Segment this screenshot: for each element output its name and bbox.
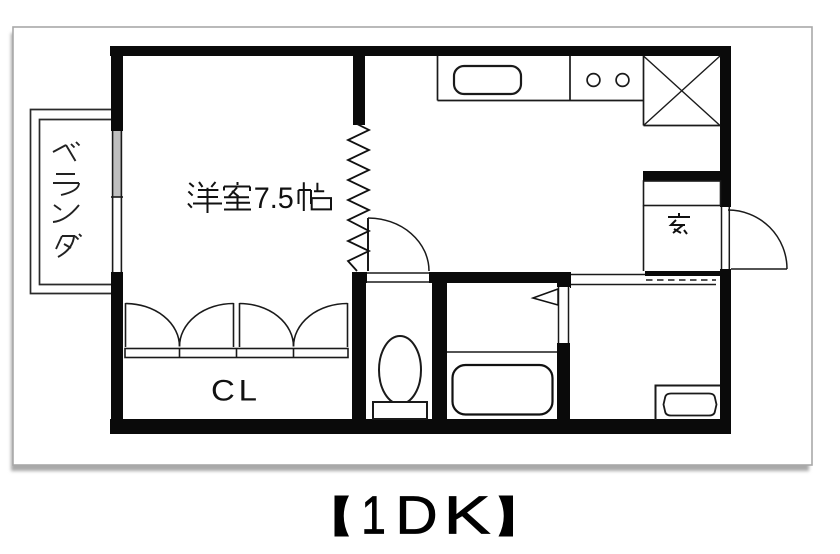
svg-text:1: 1 (361, 485, 386, 545)
svg-text:K: K (444, 485, 491, 545)
svg-text:D: D (395, 484, 437, 545)
svg-text:7.5: 7.5 (254, 181, 294, 215)
svg-text:CL: CL (211, 373, 261, 407)
